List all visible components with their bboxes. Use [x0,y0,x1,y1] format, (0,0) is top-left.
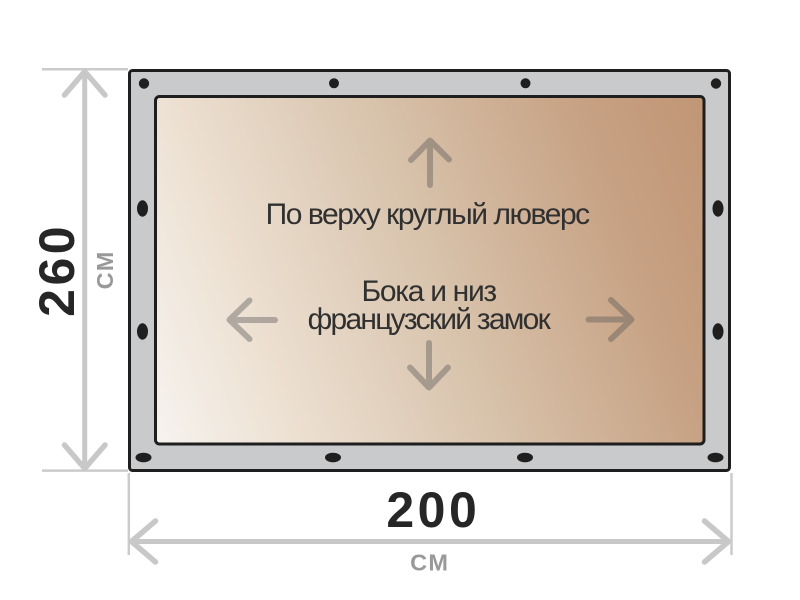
svg-text:200: 200 [386,482,480,538]
svg-text:французский замок: французский замок [308,303,552,336]
svg-text:260: 260 [29,223,85,317]
svg-text:СМ: СМ [92,250,118,289]
svg-text:По верху круглый люверс: По верху круглый люверс [266,198,591,231]
svg-text:СМ: СМ [410,550,449,576]
